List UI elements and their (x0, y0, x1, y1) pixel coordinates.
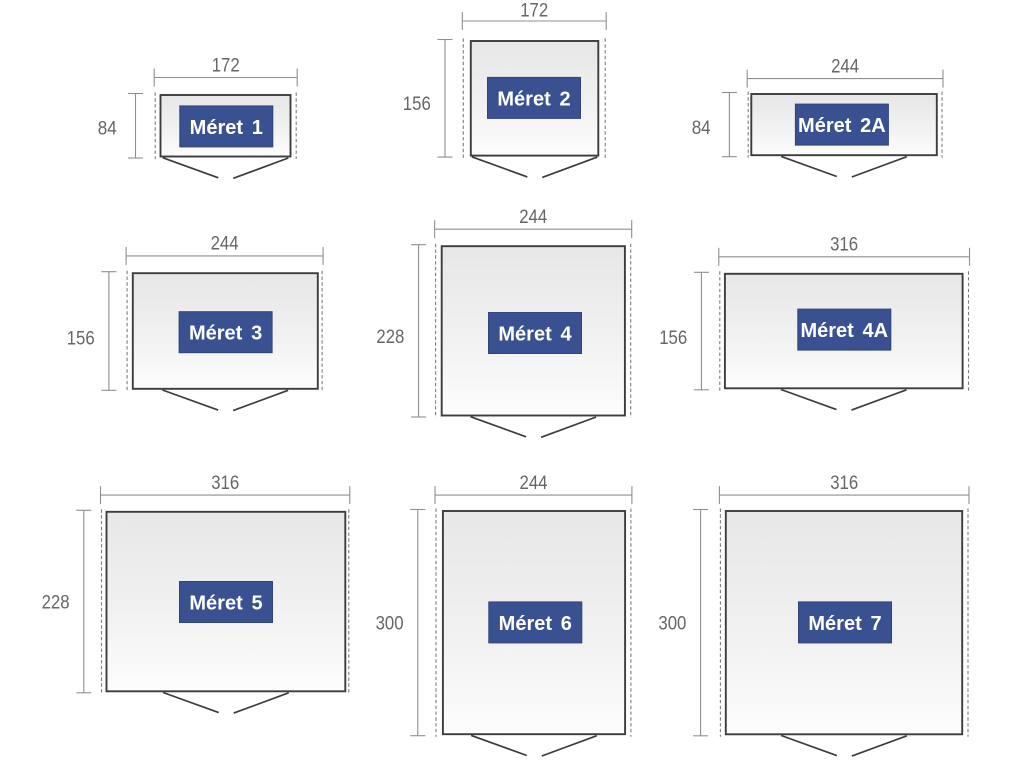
svg-text:244: 244 (519, 207, 547, 228)
svg-text:Méret 1: Méret 1 (190, 117, 263, 139)
svg-text:156: 156 (67, 328, 95, 349)
svg-text:228: 228 (42, 593, 70, 614)
svg-text:300: 300 (658, 614, 686, 635)
svg-text:172: 172 (212, 55, 240, 76)
svg-text:300: 300 (376, 614, 404, 635)
svg-text:172: 172 (520, 1, 548, 22)
svg-text:84: 84 (98, 118, 117, 139)
svg-text:244: 244 (211, 234, 239, 255)
svg-text:Méret 3: Méret 3 (189, 323, 262, 345)
svg-text:Méret 4A: Méret 4A (800, 320, 888, 342)
svg-text:244: 244 (831, 56, 859, 77)
svg-text:84: 84 (692, 118, 711, 139)
svg-text:Méret 6: Méret 6 (499, 613, 572, 635)
svg-text:228: 228 (376, 327, 404, 348)
svg-text:Méret 2: Méret 2 (497, 88, 570, 110)
svg-text:Méret 4: Méret 4 (498, 324, 572, 346)
svg-text:316: 316 (211, 473, 239, 494)
svg-text:244: 244 (520, 473, 548, 494)
svg-text:316: 316 (830, 473, 858, 494)
svg-text:Méret 7: Méret 7 (808, 613, 881, 635)
svg-text:316: 316 (830, 235, 858, 256)
svg-text:Méret 2A: Méret 2A (798, 115, 886, 137)
svg-text:156: 156 (659, 328, 687, 349)
svg-text:Méret 5: Méret 5 (189, 593, 262, 615)
svg-text:156: 156 (403, 94, 431, 115)
